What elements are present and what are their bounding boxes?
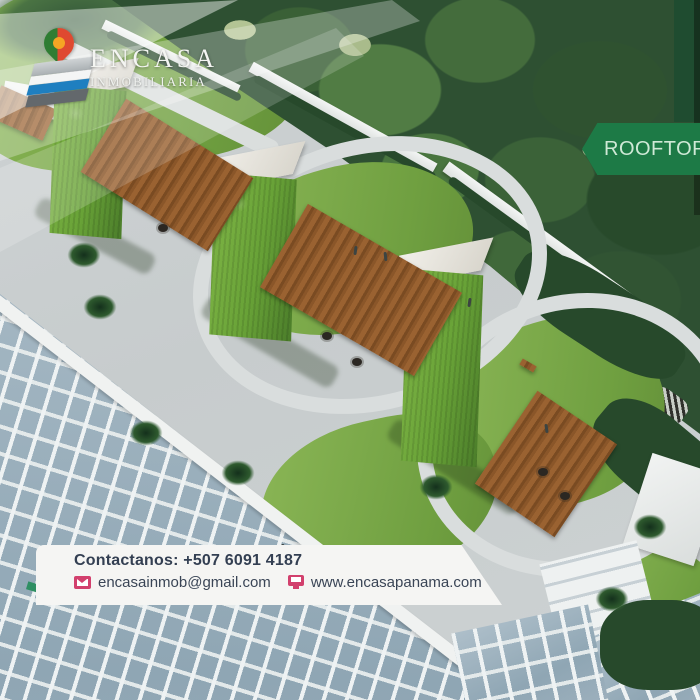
palm-tree xyxy=(62,238,106,272)
patio-furniture xyxy=(352,358,362,366)
palm-tree xyxy=(124,416,168,450)
contact-bar: Contactanos: +507 6091 4187 encasainmob@… xyxy=(36,545,502,605)
flyer-canvas: ENCASA INMOBILIARIA ROOFTOP Contactanos:… xyxy=(0,0,700,700)
facade-bottom-center xyxy=(451,605,609,700)
image-edge-shadow xyxy=(694,0,700,215)
contact-email: encasainmob@gmail.com xyxy=(98,574,271,591)
monitor-screen xyxy=(288,575,304,586)
palm-tree xyxy=(78,290,122,324)
patio-furniture xyxy=(322,332,332,340)
patio-furniture xyxy=(560,492,570,500)
palm-tree xyxy=(216,456,260,490)
envelope-flap xyxy=(77,579,88,586)
brand-logo: ENCASA INMOBILIARIA xyxy=(28,24,238,116)
brand-text: ENCASA INMOBILIARIA xyxy=(90,46,218,88)
brand-name: ENCASA xyxy=(90,46,218,72)
map-pin-icon xyxy=(38,22,80,64)
contact-links-row: encasainmob@gmail.com www.encasapanama.c… xyxy=(74,574,502,591)
brand-subtitle: INMOBILIARIA xyxy=(90,75,218,88)
monitor-icon xyxy=(288,575,304,590)
stacked-layers-icon xyxy=(28,60,98,104)
patio-furniture xyxy=(158,224,168,232)
patio-furniture xyxy=(538,468,548,476)
rooftop-banner: ROOFTOP xyxy=(582,123,700,175)
palm-tree xyxy=(414,470,458,504)
contact-website: www.encasapanama.com xyxy=(311,574,482,591)
palm-tree xyxy=(628,510,672,544)
facade-accent xyxy=(142,368,183,387)
monitor-stand xyxy=(293,586,299,589)
envelope-icon xyxy=(74,576,91,589)
pin-dot-icon xyxy=(51,35,68,52)
contact-phone: Contactanos: +507 6091 4187 xyxy=(74,552,502,570)
palm-tree xyxy=(590,582,634,616)
rooftop-banner-label: ROOFTOP xyxy=(604,138,700,161)
